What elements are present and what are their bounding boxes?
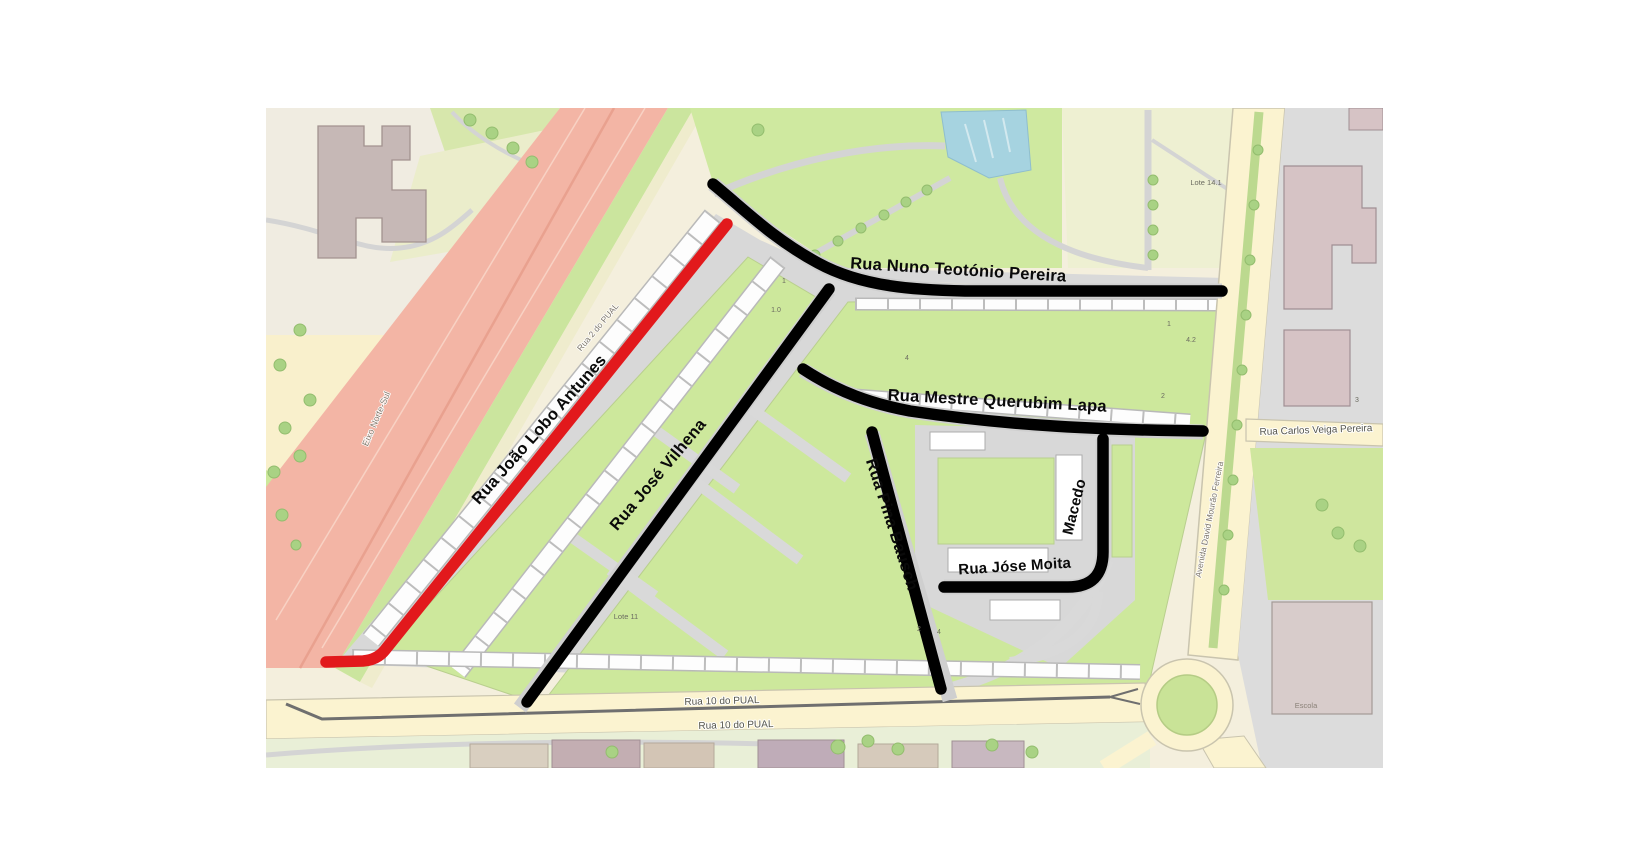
building-bottom-3 <box>644 743 714 768</box>
svg-text:1: 1 <box>1167 321 1171 328</box>
map-figure: Eixo Norte-Sul Rua 2 do PUAL Rua 10 do P… <box>0 0 1630 860</box>
building-bottom-2 <box>552 740 640 768</box>
svg-text:1.0: 1.0 <box>771 307 781 314</box>
svg-text:4.2: 4.2 <box>1186 337 1196 344</box>
label-rua-10-do-pual-upper: Rua 10 do PUAL <box>684 695 760 708</box>
building-bottom-1 <box>470 744 548 768</box>
building-right-2 <box>1284 330 1350 406</box>
building-right-3 <box>1349 108 1383 130</box>
svg-text:4: 4 <box>905 355 909 362</box>
svg-text:1: 1 <box>782 278 786 285</box>
svg-text:2: 2 <box>1161 393 1165 400</box>
label-lote-11: Lote 11 <box>614 612 638 621</box>
label-rua-10-do-pual-lower: Rua 10 do PUAL <box>698 719 774 732</box>
svg-text:4: 4 <box>937 629 941 636</box>
map-canvas: Eixo Norte-Sul Rua 2 do PUAL Rua 10 do P… <box>0 0 1630 860</box>
svg-text:2: 2 <box>917 626 921 633</box>
svg-text:3: 3 <box>1355 397 1359 404</box>
label-escola: Escola <box>1295 701 1318 710</box>
building-escola <box>1272 602 1372 714</box>
label-lote-14-1: Lote 14.1 <box>1190 178 1221 187</box>
